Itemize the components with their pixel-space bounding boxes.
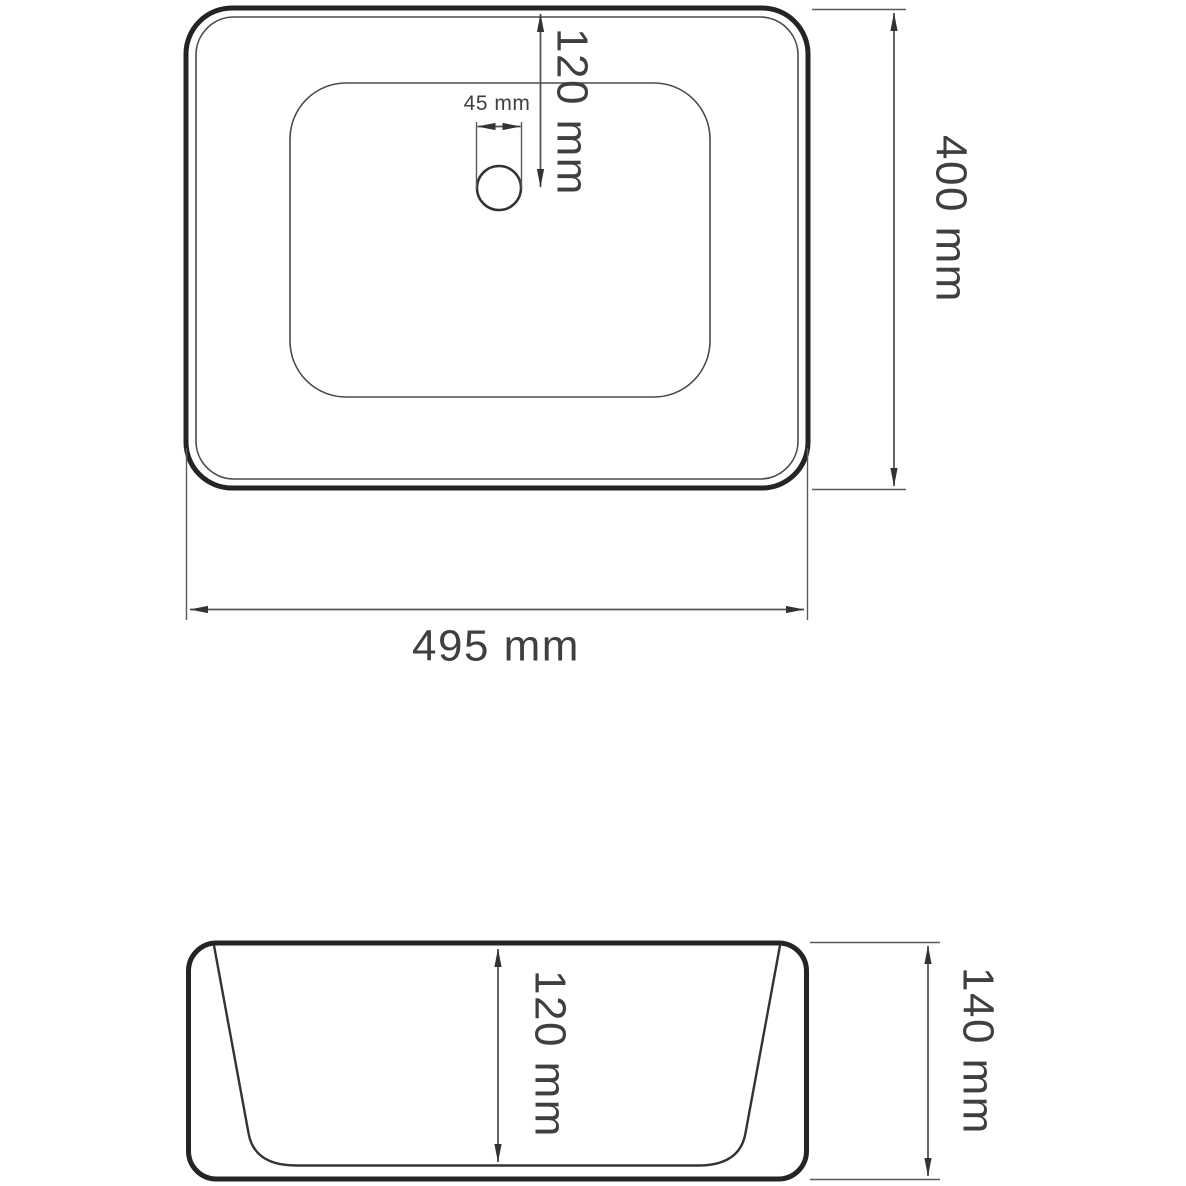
top-view-outer-rim: [186, 8, 808, 488]
drain-hole-circle: [477, 166, 521, 210]
dim-overall-width: 495 mm: [187, 448, 808, 670]
dim-495-label: 495 mm: [412, 621, 580, 670]
dim-drain-offset-label: 120 mm: [548, 28, 597, 196]
side-view-basin-profile: [214, 946, 780, 1166]
drawing-canvas: 45 mm 120 mm 400 mm 495 mm: [0, 0, 1186, 1186]
dim-drain-label: 45 mm: [464, 92, 531, 115]
dim-140-label: 140 mm: [954, 967, 1003, 1135]
dim-overall-depth: 400 mm: [812, 10, 976, 490]
top-view-inner-rim-line: [196, 17, 798, 479]
dim-overall-height: 140 mm: [810, 943, 1003, 1180]
sink-technical-drawing: 45 mm 120 mm 400 mm 495 mm: [0, 0, 1186, 1186]
top-view: 45 mm 120 mm 400 mm 495 mm: [186, 8, 976, 670]
dim-basin-depth-label: 120 mm: [526, 970, 575, 1138]
dim-drain-offset: 120 mm: [541, 14, 597, 196]
side-view: 120 mm 140 mm: [189, 943, 1003, 1180]
top-view-basin-outline: [290, 83, 710, 397]
dim-basin-depth: 120 mm: [498, 949, 575, 1162]
dim-drain-diameter: 45 mm: [464, 92, 531, 189]
dim-400-label: 400 mm: [927, 135, 976, 303]
